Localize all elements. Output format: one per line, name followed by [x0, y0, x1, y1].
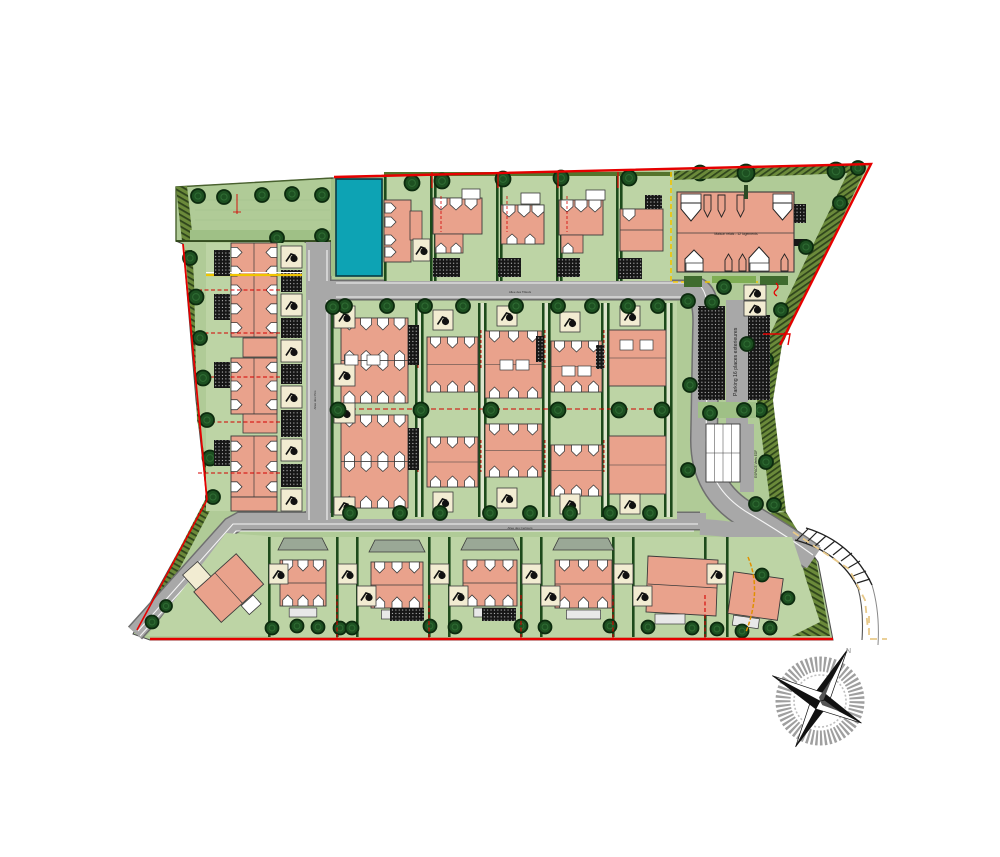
svg-text:Parking 16 places exterieures: Parking 16 places exterieures: [733, 327, 739, 396]
svg-text:N: N: [846, 648, 851, 655]
svg-text:Allee des Pins: Allee des Pins: [313, 390, 317, 410]
svg-text:ESPACE Verts EDF: ESPACE Verts EDF: [754, 450, 758, 478]
svg-text:Maison relais - 12 logements: Maison relais - 12 logements: [714, 232, 758, 236]
svg-text:Allee des Tilleuls: Allee des Tilleuls: [509, 290, 532, 294]
svg-text:Allee des Cerisiers: Allee des Cerisiers: [507, 526, 533, 530]
